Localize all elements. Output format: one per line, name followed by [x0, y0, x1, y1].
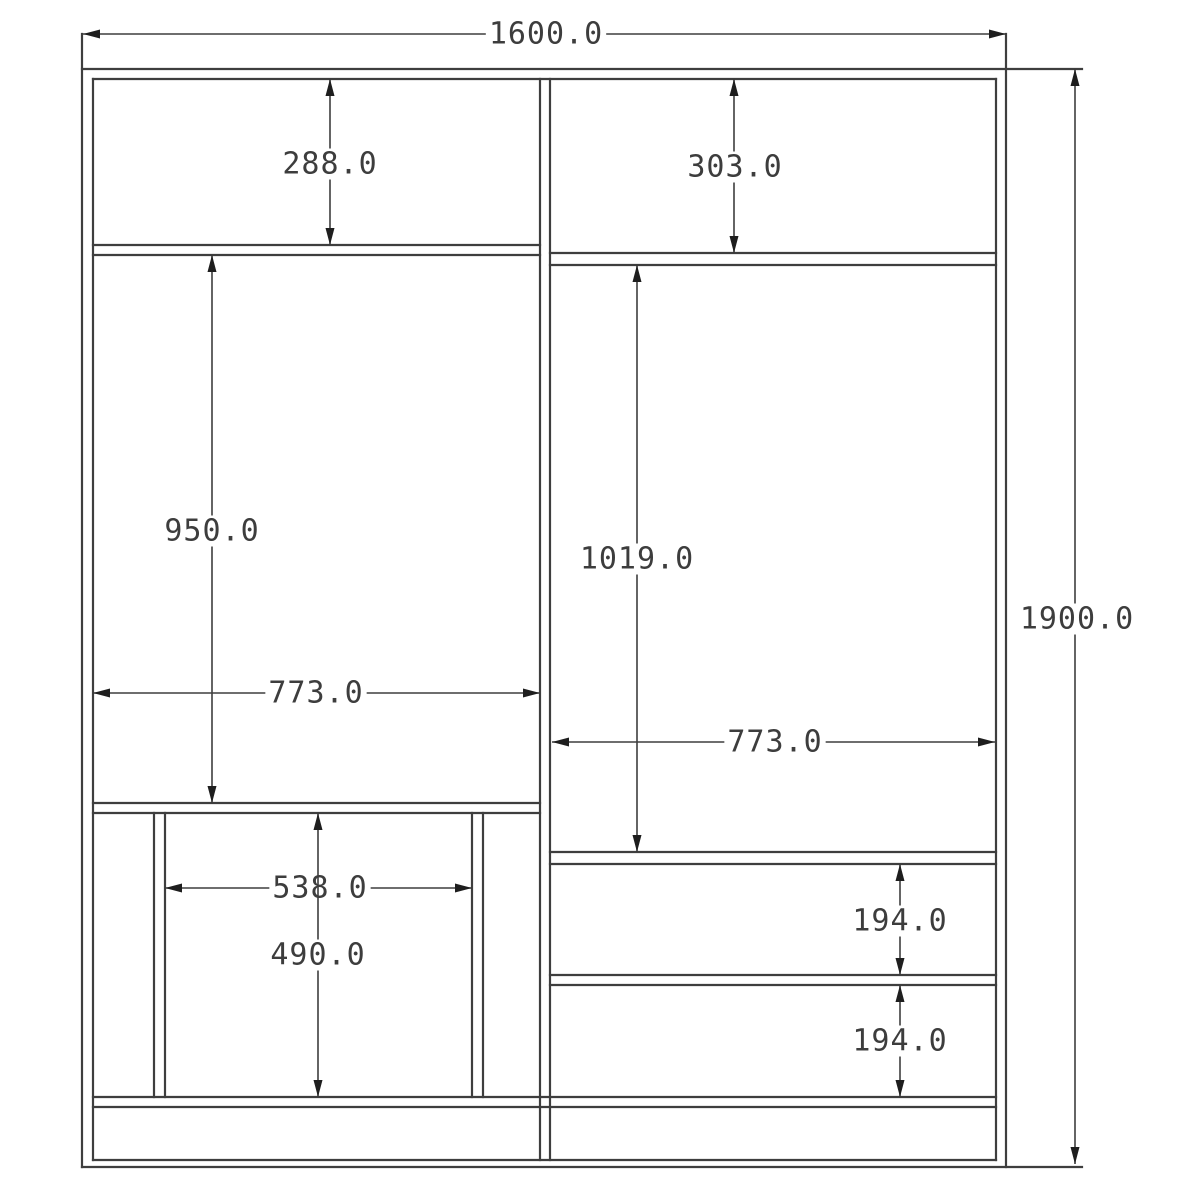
- dimension-arrow-bottom-right-top-cavity: [730, 236, 739, 253]
- dimension-arrow-left-inner-box-width: [165, 884, 182, 893]
- dimension-label-right-mid-cavity: 1019.0: [580, 542, 694, 577]
- dimension-arrow-right-inner-box-width: [455, 884, 472, 893]
- dimension-arrow-left-overall-width: [83, 30, 100, 39]
- dimension-arrow-right-right-cavity-width: [978, 738, 995, 747]
- dimension-label-overall-height: 1900.0: [1020, 602, 1134, 637]
- dimension-label-drawer-1-height: 194.0: [852, 904, 947, 939]
- dimension-arrow-right-left-cavity-width: [523, 689, 540, 698]
- dimension-arrow-top-right-top-cavity: [730, 79, 739, 96]
- dimension-arrow-top-inner-box-height: [314, 813, 323, 830]
- dimension-label-left-mid-cavity: 950.0: [164, 514, 259, 549]
- dimension-arrow-bottom-drawer-2-height: [896, 1080, 905, 1097]
- technical-drawing: 1600.01900.0288.0303.0950.01019.0773.077…: [0, 0, 1200, 1200]
- dimension-arrow-top-drawer-1-height: [896, 864, 905, 881]
- dimension-label-overall-width: 1600.0: [489, 17, 603, 52]
- dimension-label-left-cavity-width: 773.0: [268, 676, 363, 711]
- dimension-label-inner-box-width: 538.0: [272, 871, 367, 906]
- dimension-arrow-top-left-top-cavity: [326, 79, 335, 96]
- dimension-arrow-bottom-left-mid-cavity: [208, 786, 217, 803]
- dimension-label-inner-box-height: 490.0: [270, 938, 365, 973]
- dimension-label-right-top-cavity: 303.0: [687, 150, 782, 185]
- dimension-arrow-bottom-left-top-cavity: [326, 228, 335, 245]
- dimension-arrow-left-right-cavity-width: [552, 738, 569, 747]
- dimension-arrow-right-overall-width: [989, 30, 1006, 39]
- dimension-label-right-cavity-width: 773.0: [727, 725, 822, 760]
- dimension-label-left-top-cavity: 288.0: [282, 147, 377, 182]
- dimension-arrow-bottom-drawer-1-height: [896, 958, 905, 975]
- dimension-arrow-bottom-overall-height: [1071, 1147, 1080, 1164]
- dimension-arrow-top-overall-height: [1071, 69, 1080, 86]
- drawing-canvas: 1600.01900.0288.0303.0950.01019.0773.077…: [0, 0, 1200, 1200]
- dimension-arrow-top-right-mid-cavity: [633, 265, 642, 282]
- dimension-arrow-top-drawer-2-height: [896, 985, 905, 1002]
- dimension-arrow-top-left-mid-cavity: [208, 255, 217, 272]
- dimension-arrow-left-left-cavity-width: [93, 689, 110, 698]
- dimension-arrow-bottom-inner-box-height: [314, 1080, 323, 1097]
- dimension-arrow-bottom-right-mid-cavity: [633, 835, 642, 852]
- dimension-label-drawer-2-height: 194.0: [852, 1024, 947, 1059]
